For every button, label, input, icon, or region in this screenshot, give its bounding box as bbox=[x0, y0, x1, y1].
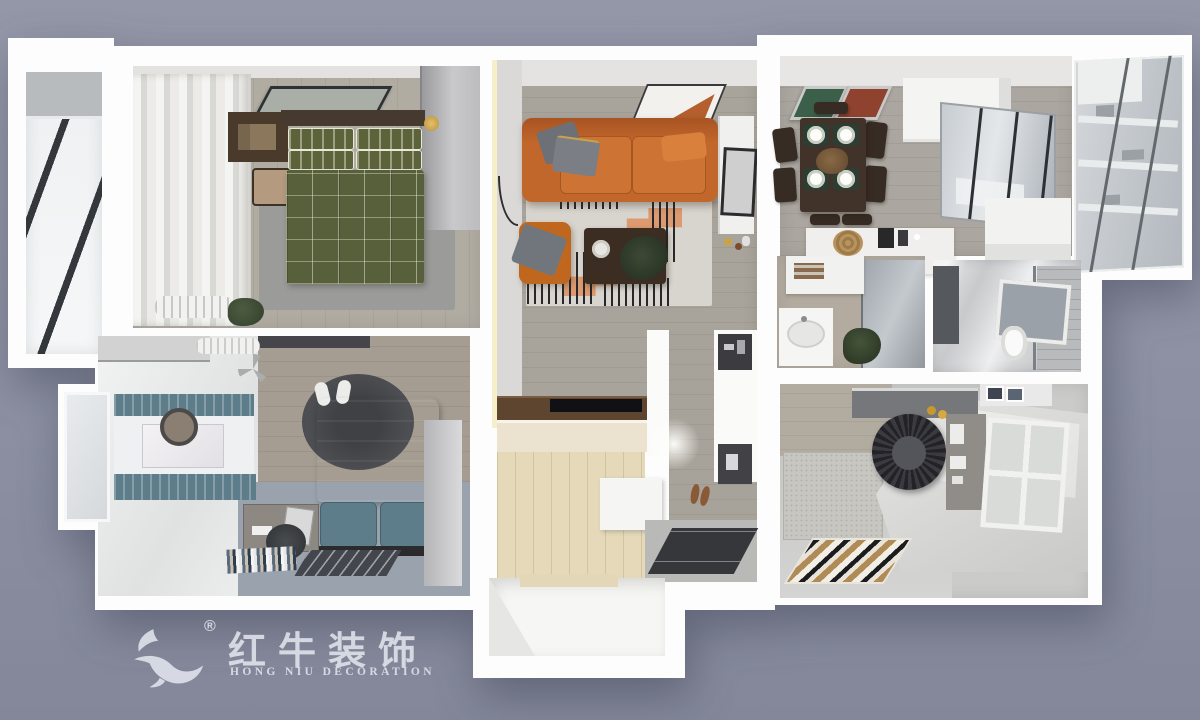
floor-light-glow bbox=[648, 418, 700, 470]
dining-kitchen bbox=[780, 56, 1072, 256]
round-mirror bbox=[160, 408, 198, 446]
towel-stack bbox=[794, 263, 824, 279]
plate bbox=[837, 126, 855, 144]
coffee-machine bbox=[878, 228, 894, 248]
bathroom-partition bbox=[933, 266, 959, 344]
cup bbox=[914, 234, 920, 240]
wardrobe bbox=[420, 66, 480, 230]
plate bbox=[837, 170, 855, 188]
niche-item bbox=[724, 344, 734, 350]
pillow bbox=[356, 128, 422, 150]
wall-switch-panel bbox=[950, 424, 964, 444]
woven-decor-plate bbox=[833, 230, 863, 256]
vestibule-threshold bbox=[520, 574, 618, 587]
bed-headboard bbox=[281, 110, 425, 126]
small-framed-picture bbox=[986, 386, 1004, 401]
tatami-window bbox=[980, 417, 1069, 532]
wall-shelf-dark bbox=[258, 336, 370, 348]
dining-chair bbox=[773, 167, 797, 202]
balcony-left-top-panel bbox=[26, 72, 102, 119]
plate bbox=[807, 126, 825, 144]
book-row bbox=[223, 546, 296, 574]
display-niche bbox=[718, 334, 752, 370]
storage-shelf bbox=[1078, 159, 1178, 171]
gold-wall-light bbox=[927, 406, 936, 415]
radiator-unit bbox=[155, 296, 233, 318]
dining-chair bbox=[863, 165, 887, 202]
cup bbox=[923, 236, 929, 242]
dining-chair bbox=[814, 102, 848, 114]
dining-chair bbox=[842, 214, 872, 225]
teal-curtain-bottom bbox=[114, 474, 256, 500]
wall-switch-panel bbox=[952, 476, 963, 484]
bedside-lamp bbox=[424, 116, 439, 131]
toilet bbox=[1001, 326, 1027, 360]
washroom bbox=[777, 256, 925, 368]
tatami-room bbox=[780, 384, 1088, 598]
niche-item bbox=[737, 340, 745, 354]
pillow bbox=[288, 150, 354, 170]
living-north-wall-face bbox=[522, 60, 757, 86]
sink bbox=[787, 320, 825, 348]
kettle bbox=[898, 230, 908, 246]
serving-tray bbox=[592, 240, 610, 258]
green-plaid-duvet bbox=[286, 170, 424, 284]
balcony-cabinet bbox=[1078, 57, 1142, 104]
console-framed-art bbox=[720, 147, 757, 217]
registered-trademark: ® bbox=[204, 618, 216, 636]
storage-shelf bbox=[1078, 115, 1178, 127]
plate bbox=[807, 170, 825, 188]
decor-bottle bbox=[724, 238, 732, 246]
floorplan-render-scene: ® 红牛装饰 HONG NIU DECORATION bbox=[0, 0, 1200, 720]
gray-throw-pillow bbox=[552, 135, 601, 177]
teal-duvet bbox=[317, 398, 439, 502]
bay-window-glazing bbox=[64, 392, 110, 522]
pillow bbox=[288, 128, 354, 150]
air-conditioner bbox=[196, 338, 260, 354]
shelf-item bbox=[1122, 149, 1144, 160]
fabric-bed-block bbox=[783, 452, 883, 540]
led-light-strip bbox=[492, 60, 497, 428]
dining-chair bbox=[772, 127, 799, 164]
bull-logo-icon bbox=[130, 626, 208, 688]
bathroom bbox=[933, 260, 1081, 372]
kitchen-island bbox=[985, 198, 1071, 260]
table-centerpiece bbox=[816, 148, 848, 174]
balcony-right-glazing bbox=[1074, 55, 1184, 273]
dark-floor-mat bbox=[294, 550, 401, 576]
decor-bottle bbox=[742, 236, 750, 246]
brand-watermark: ® 红牛装饰 HONG NIU DECORATION bbox=[128, 616, 408, 700]
rattan-chair-seat bbox=[892, 436, 926, 470]
niche-item bbox=[726, 454, 738, 470]
bedroom-second bbox=[98, 336, 470, 596]
faucet bbox=[801, 316, 807, 322]
decor-bottle bbox=[735, 243, 742, 250]
television bbox=[550, 399, 642, 412]
ceiling-fan bbox=[238, 354, 268, 384]
storage-shelf bbox=[1078, 203, 1178, 215]
bedroom-master bbox=[133, 66, 480, 328]
brand-name-english: HONG NIU DECORATION bbox=[230, 666, 435, 678]
shelf-item bbox=[1104, 194, 1120, 205]
nightstand-drawers bbox=[236, 122, 278, 152]
wall-switch-panel bbox=[950, 456, 966, 469]
orange-cushion bbox=[661, 132, 707, 162]
apartment-building bbox=[0, 0, 1200, 720]
pillow bbox=[320, 502, 377, 548]
tv-cabinet-front bbox=[497, 420, 659, 452]
closet-band bbox=[98, 336, 210, 362]
wardrobe bbox=[424, 420, 462, 586]
pillow bbox=[356, 150, 422, 170]
small-framed-picture bbox=[1006, 387, 1024, 402]
dining-chair bbox=[810, 214, 840, 225]
